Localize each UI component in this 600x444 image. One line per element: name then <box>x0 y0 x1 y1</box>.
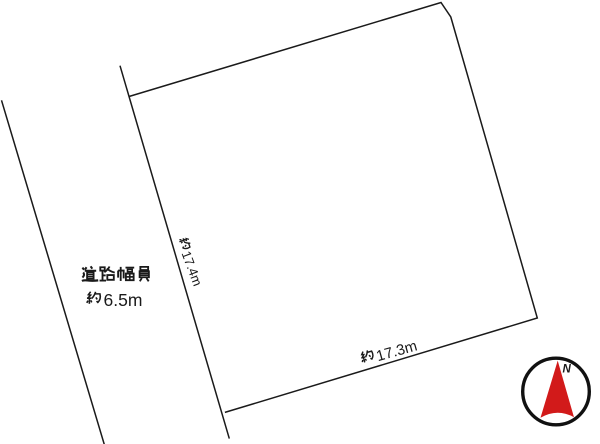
svg-text:17.4m: 17.4m <box>179 249 206 288</box>
svg-text:6.5m: 6.5m <box>104 290 143 310</box>
svg-text:N: N <box>563 364 572 376</box>
